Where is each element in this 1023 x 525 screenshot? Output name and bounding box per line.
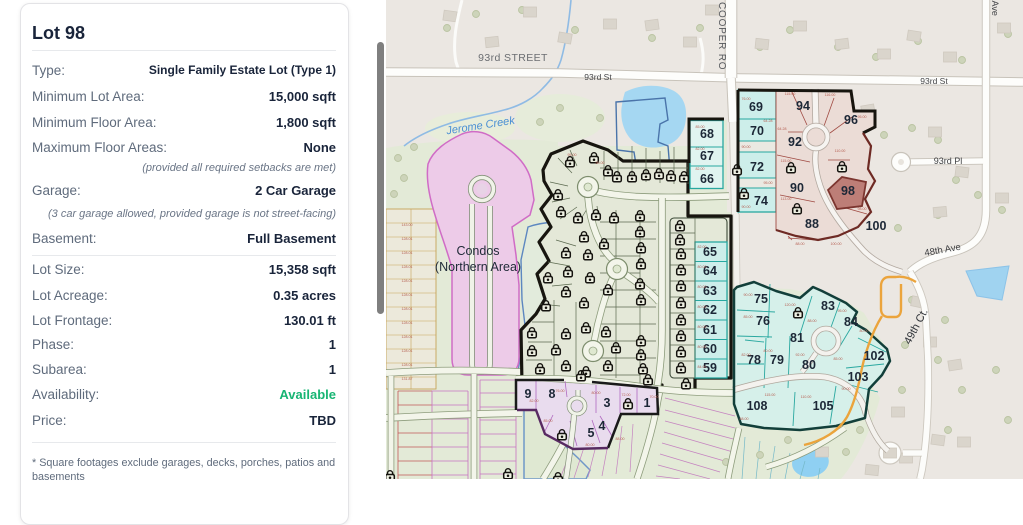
svg-text:81: 81 (790, 331, 804, 345)
svg-text:143.00: 143.00 (402, 223, 413, 227)
svg-text:95.00: 95.00 (764, 181, 773, 185)
svg-text:128.01: 128.01 (402, 321, 413, 325)
svg-text:88.00: 88.00 (740, 417, 749, 421)
svg-text:80.00: 80.00 (592, 391, 601, 395)
svg-text:80.00: 80.00 (698, 265, 707, 269)
svg-text:98.00: 98.00 (858, 207, 867, 211)
svg-text:95.00: 95.00 (858, 115, 867, 119)
svg-text:80.00: 80.00 (586, 443, 595, 447)
svg-text:128.01: 128.01 (402, 251, 413, 255)
svg-text:4: 4 (599, 419, 606, 433)
svg-text:88.00: 88.00 (616, 437, 625, 441)
svg-text:120.00: 120.00 (785, 303, 796, 307)
svg-text:74: 74 (754, 194, 768, 208)
svg-text:131.87: 131.87 (402, 377, 413, 381)
svg-text:115.00: 115.00 (781, 159, 792, 163)
svg-text:88.00: 88.00 (808, 319, 817, 323)
svg-text:115.00: 115.00 (785, 92, 796, 96)
svg-text:80: 80 (802, 358, 816, 372)
svg-text:88.00: 88.00 (796, 242, 805, 246)
svg-text:100: 100 (866, 219, 887, 233)
svg-text:108: 108 (747, 399, 768, 413)
svg-text:113.00: 113.00 (781, 197, 792, 201)
svg-text:90.00: 90.00 (742, 205, 751, 209)
svg-text:128.01: 128.01 (402, 237, 413, 241)
svg-text:76.00: 76.00 (556, 389, 565, 393)
svg-text:128.01: 128.01 (402, 265, 413, 269)
svg-text:90.00: 90.00 (742, 145, 751, 149)
svg-text:5: 5 (588, 426, 595, 440)
svg-text:90.00: 90.00 (596, 161, 605, 165)
svg-text:80.00: 80.00 (698, 285, 707, 289)
svg-text:85.00: 85.00 (834, 357, 843, 361)
svg-text:70: 70 (750, 124, 764, 138)
svg-text:67: 67 (700, 149, 714, 163)
svg-text:103: 103 (848, 370, 869, 384)
svg-text:90: 90 (790, 181, 804, 195)
svg-text:68: 68 (700, 127, 714, 141)
svg-text:82.00: 82.00 (742, 353, 751, 357)
svg-text:128.01: 128.01 (402, 363, 413, 367)
svg-text:76.00: 76.00 (742, 97, 751, 101)
svg-text:72.00: 72.00 (622, 393, 631, 397)
svg-text:82.00: 82.00 (696, 147, 705, 151)
svg-text:79: 79 (770, 353, 784, 367)
svg-text:128.01: 128.01 (402, 349, 413, 353)
svg-text:Condos: Condos (456, 244, 499, 258)
svg-text:75: 75 (754, 292, 768, 306)
svg-text:80.00: 80.00 (764, 349, 773, 353)
svg-text:90.00: 90.00 (842, 387, 851, 391)
svg-text:70.00: 70.00 (650, 395, 659, 399)
svg-text:110.00: 110.00 (801, 395, 812, 399)
svg-text:128.01: 128.01 (402, 279, 413, 283)
svg-text:72: 72 (750, 160, 764, 174)
svg-text:69: 69 (749, 100, 763, 114)
svg-text:115.00: 115.00 (765, 393, 776, 397)
svg-text:90.00: 90.00 (744, 293, 753, 297)
svg-text:93rd St: 93rd St (920, 76, 948, 86)
svg-text:64.28: 64.28 (764, 119, 773, 123)
svg-text:4th Ave: 4th Ave (990, 0, 1000, 16)
svg-text:84.00: 84.00 (698, 365, 707, 369)
svg-text:80.00: 80.00 (698, 345, 707, 349)
svg-text:80.00: 80.00 (860, 329, 869, 333)
svg-text:84: 84 (844, 315, 858, 329)
svg-text:80.00: 80.00 (698, 305, 707, 309)
svg-text:128.01: 128.01 (402, 293, 413, 297)
svg-text:116.00: 116.00 (825, 93, 836, 97)
svg-text:85.00: 85.00 (696, 125, 705, 129)
svg-text:COOPER RO: COOPER RO (716, 2, 727, 70)
svg-text:82.00: 82.00 (698, 245, 707, 249)
svg-text:100.00: 100.00 (831, 242, 842, 246)
svg-text:8: 8 (549, 387, 556, 401)
svg-text:93rd Pl: 93rd Pl (934, 156, 963, 166)
svg-text:128.01: 128.01 (402, 307, 413, 311)
svg-text:128.01: 128.01 (402, 335, 413, 339)
svg-text:83: 83 (821, 299, 835, 313)
svg-text:93rd St: 93rd St (584, 72, 612, 82)
svg-text:102: 102 (864, 349, 885, 363)
svg-text:96: 96 (844, 113, 858, 127)
svg-text:92.00: 92.00 (796, 353, 805, 357)
svg-text:92: 92 (788, 135, 802, 149)
svg-text:3: 3 (604, 396, 611, 410)
svg-text:(Northern Area): (Northern Area) (435, 260, 521, 274)
svg-text:76: 76 (756, 314, 770, 328)
svg-text:110.00: 110.00 (835, 149, 846, 153)
svg-text:95.00: 95.00 (838, 309, 847, 313)
svg-text:85.00: 85.00 (744, 315, 753, 319)
svg-text:93rd STREET: 93rd STREET (478, 52, 548, 64)
svg-text:64.28: 64.28 (778, 127, 787, 131)
svg-text:82.00: 82.00 (696, 167, 705, 171)
svg-text:105: 105 (813, 399, 834, 413)
svg-text:88: 88 (805, 217, 819, 231)
svg-text:66: 66 (700, 172, 714, 186)
svg-text:80.00: 80.00 (698, 325, 707, 329)
svg-text:98: 98 (841, 184, 855, 198)
svg-text:94: 94 (796, 99, 810, 113)
svg-text:85.00: 85.00 (544, 419, 553, 423)
svg-text:82.00: 82.00 (530, 399, 539, 403)
svg-text:95.00: 95.00 (568, 153, 577, 157)
